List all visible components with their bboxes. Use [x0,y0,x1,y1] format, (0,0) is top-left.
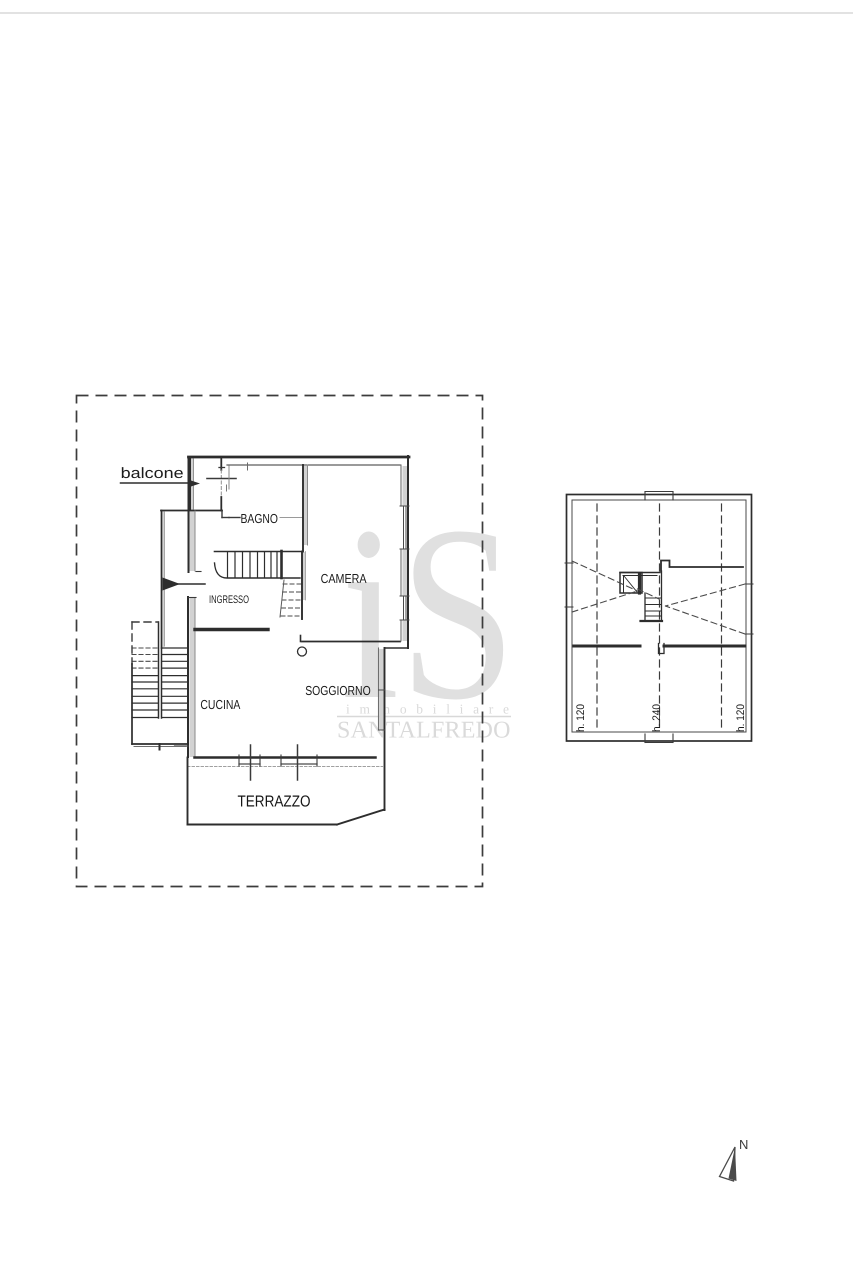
svg-text:h. 120: h. 120 [735,704,747,732]
svg-text:h. 240: h. 240 [651,704,663,732]
svg-text:N: N [739,1137,748,1152]
svg-text:immobiliare: immobiliare [346,702,519,717]
svg-text:INGRESSO: INGRESSO [209,594,249,606]
svg-text:BAGNO: BAGNO [241,511,279,526]
svg-text:SOGGIORNO: SOGGIORNO [305,683,371,698]
svg-text:SANTALFREDO: SANTALFREDO [337,718,511,744]
svg-text:balcone: balcone [121,465,184,482]
svg-text:TERRAZZO: TERRAZZO [238,794,311,811]
svg-text:h. 120: h. 120 [575,704,587,732]
svg-text:CAMERA: CAMERA [321,571,367,586]
svg-text:CUCINA: CUCINA [200,697,240,712]
